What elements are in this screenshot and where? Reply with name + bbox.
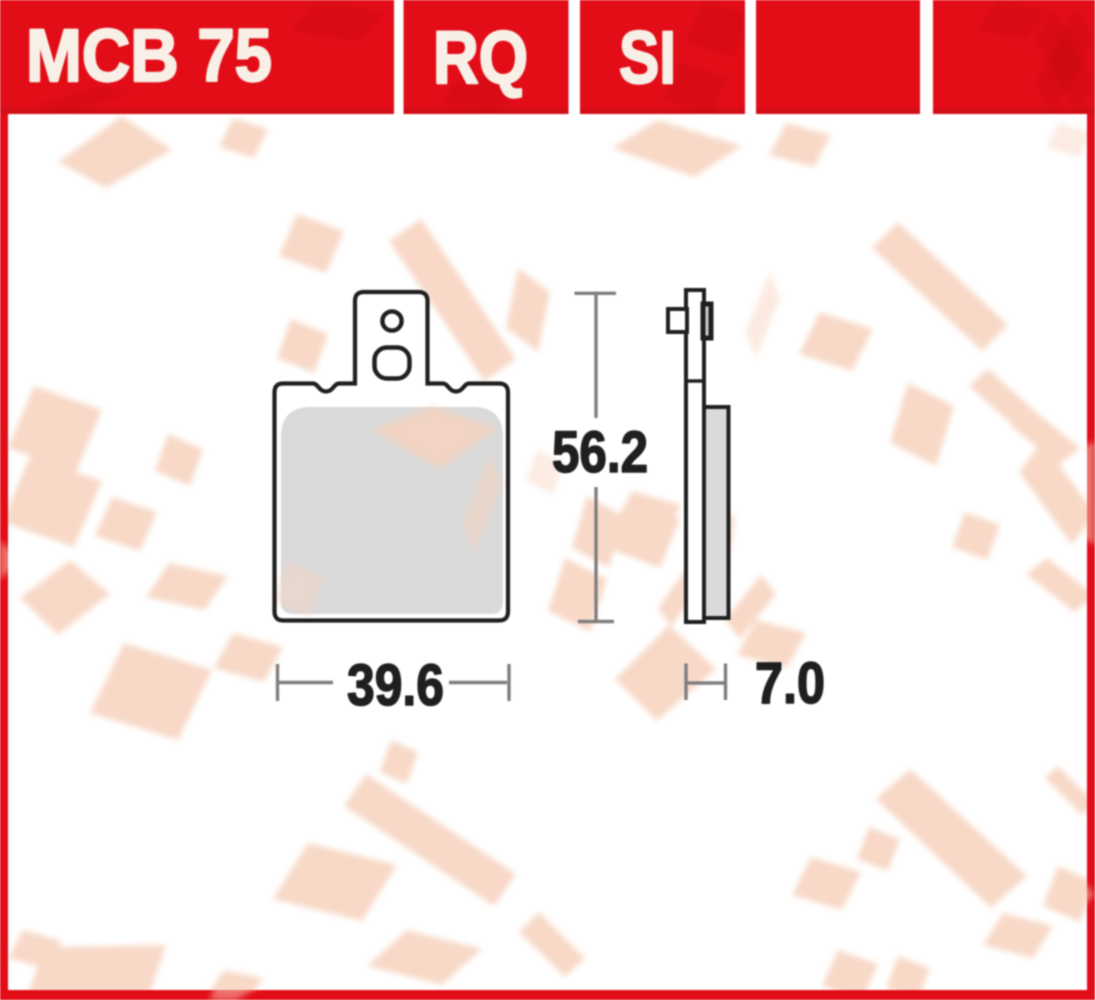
- svg-text:RQ: RQ: [433, 16, 528, 99]
- svg-text:7.0: 7.0: [755, 651, 825, 716]
- svg-text:56.2: 56.2: [552, 420, 648, 485]
- svg-text:39.6: 39.6: [347, 653, 444, 718]
- svg-text:MCB 75: MCB 75: [26, 14, 272, 97]
- svg-text:SI: SI: [619, 16, 676, 99]
